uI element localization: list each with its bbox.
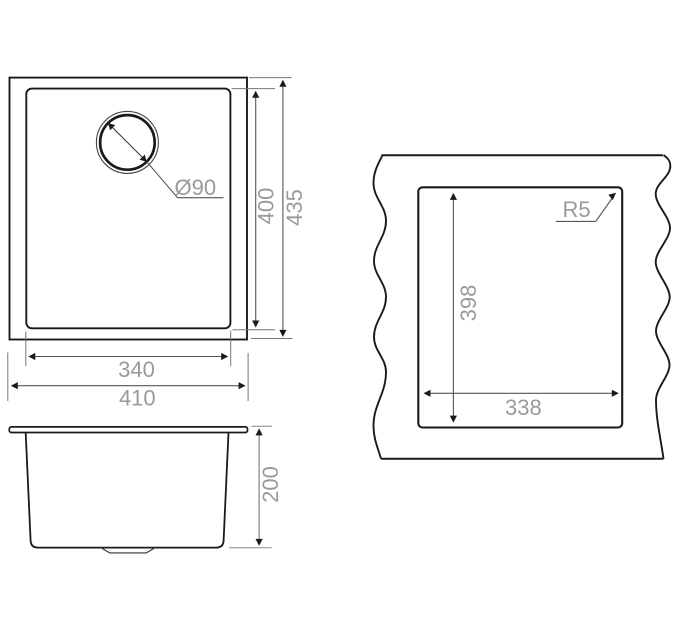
svg-text:400: 400 [253,188,278,225]
svg-text:200: 200 [258,466,283,503]
svg-text:340: 340 [118,357,155,382]
svg-text:435: 435 [282,189,307,226]
svg-text:R5: R5 [562,197,590,222]
svg-text:410: 410 [119,386,156,411]
svg-text:338: 338 [505,395,542,420]
svg-text:Ø90: Ø90 [175,175,217,200]
svg-text:398: 398 [456,285,481,322]
